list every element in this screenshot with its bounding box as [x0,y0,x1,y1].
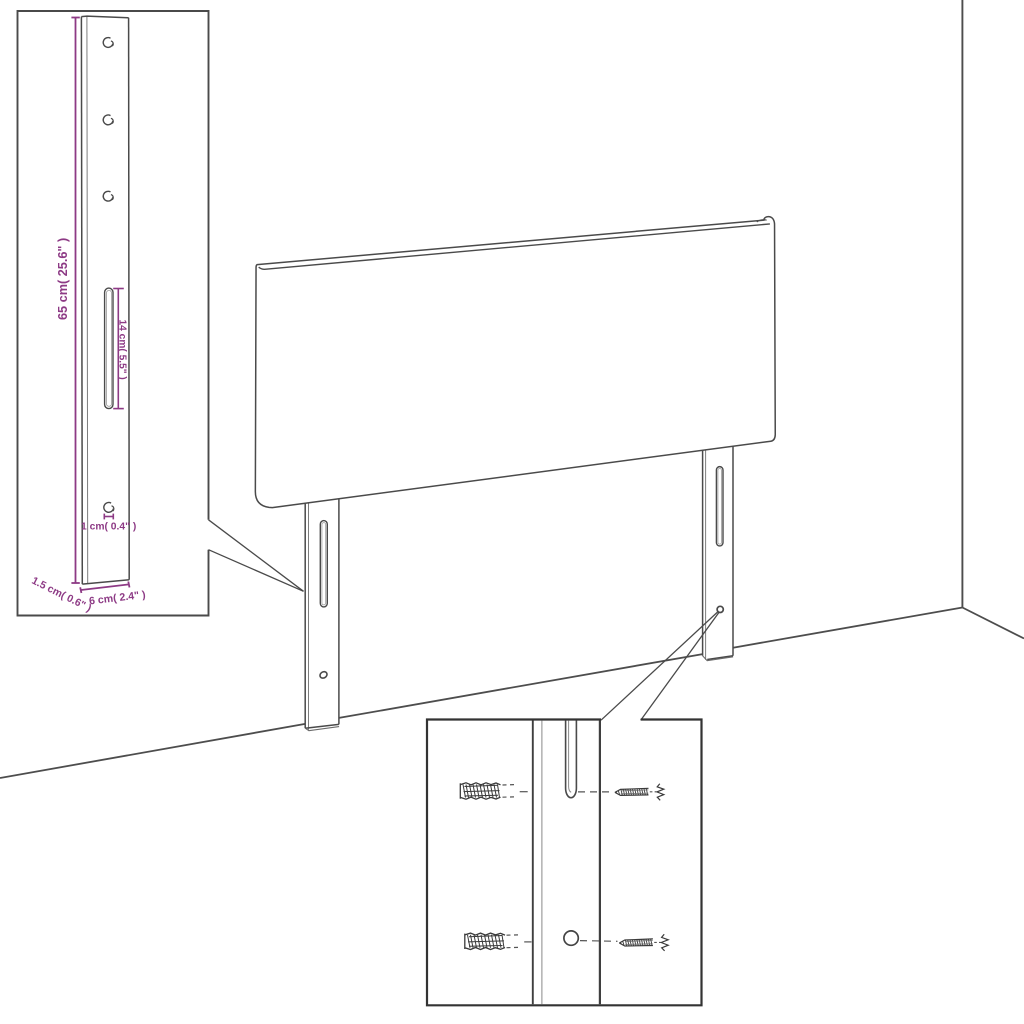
svg-text:1 cm( 0.4" ): 1 cm( 0.4" ) [81,521,136,532]
svg-text:6 cm( 2.4" ): 6 cm( 2.4" ) [88,589,146,608]
svg-text:1.5 cm( 0.6" ): 1.5 cm( 0.6" ) [30,575,94,615]
svg-text:65 cm( 25.6" ): 65 cm( 25.6" ) [56,238,70,320]
svg-text:14 cm( 5.5" ): 14 cm( 5.5" ) [117,320,128,380]
